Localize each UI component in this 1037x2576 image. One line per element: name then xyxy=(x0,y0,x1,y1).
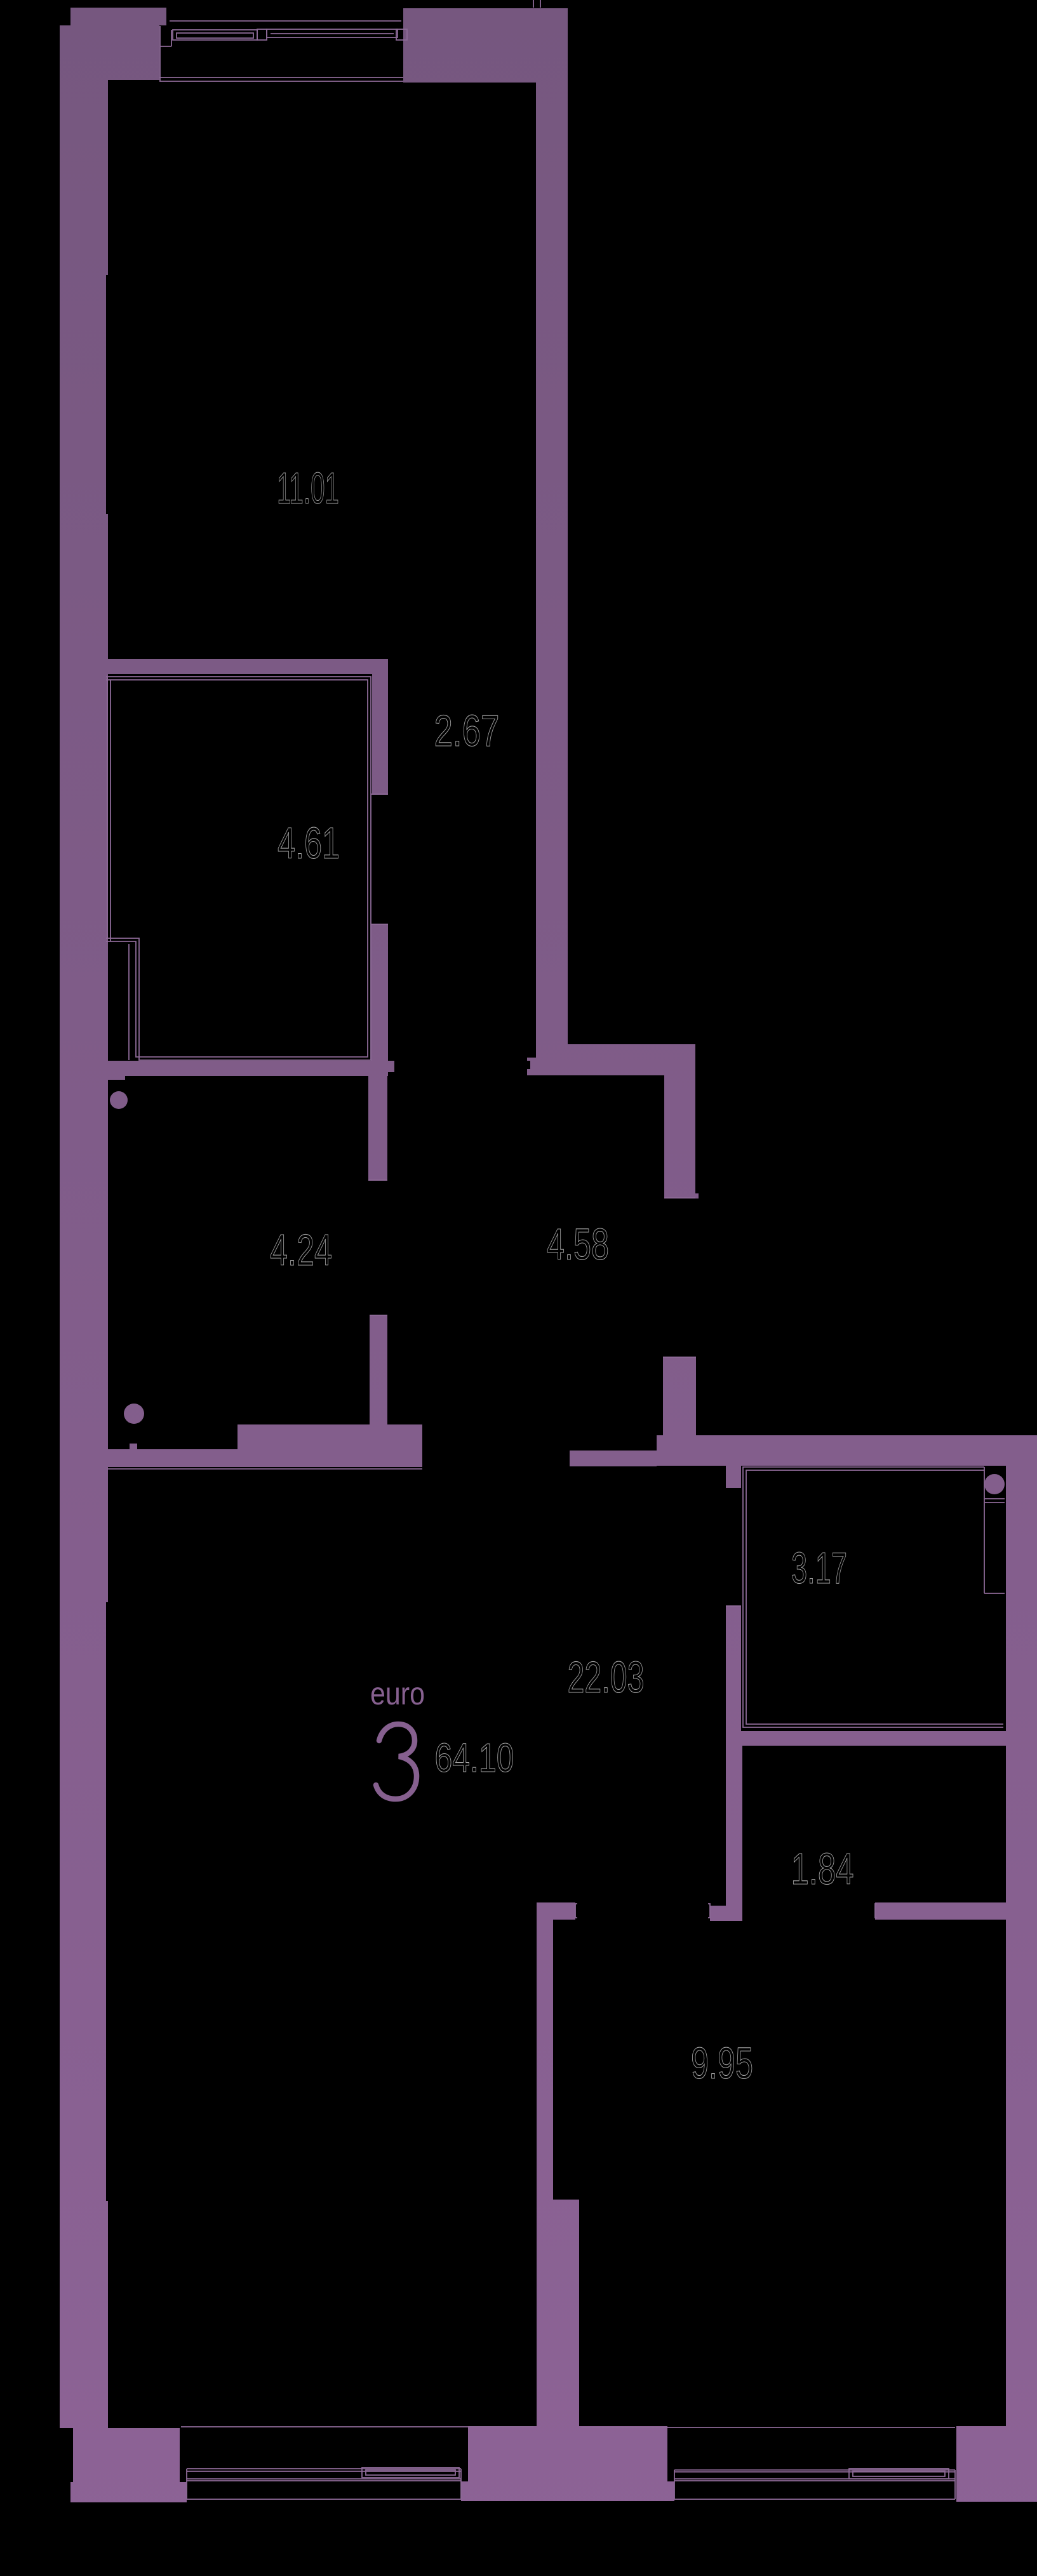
svg-text:64.10: 64.10 xyxy=(435,1735,514,1781)
svg-text:11.01: 11.01 xyxy=(277,463,339,513)
svg-text:9.95: 9.95 xyxy=(691,2038,753,2088)
svg-text:4.24: 4.24 xyxy=(270,1225,332,1275)
svg-text:2.67: 2.67 xyxy=(434,706,500,755)
svg-text:1.84: 1.84 xyxy=(791,1844,854,1894)
svg-text:22.03: 22.03 xyxy=(568,1652,645,1702)
svg-text:3.17: 3.17 xyxy=(791,1543,847,1593)
svg-text:4.61: 4.61 xyxy=(278,818,340,868)
svg-text:4.58: 4.58 xyxy=(547,1219,609,1269)
svg-text:euro: euro xyxy=(370,1676,425,1711)
